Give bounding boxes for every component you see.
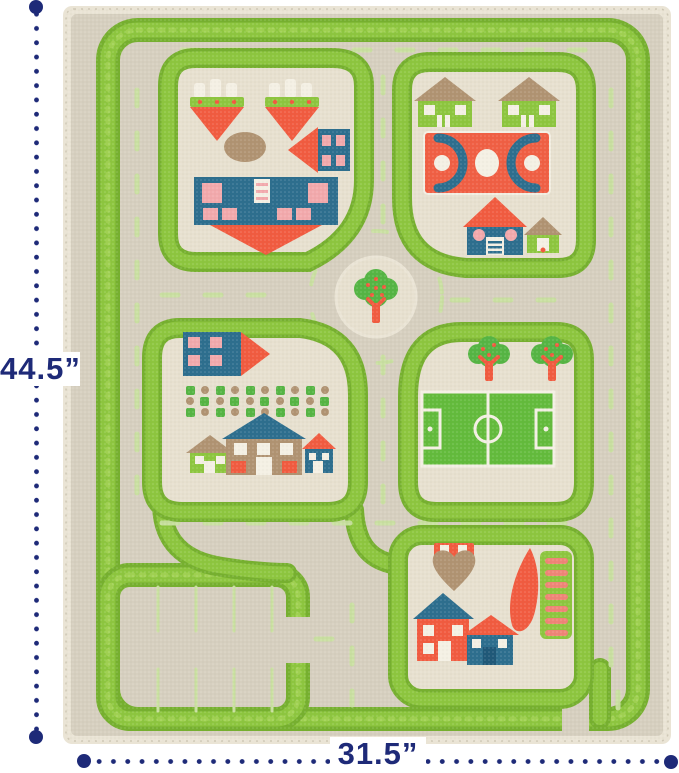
carpet-texture-overlay <box>66 9 668 741</box>
dimension-endpoint-dot <box>29 730 43 744</box>
play-rug-illustration <box>62 5 672 745</box>
height-label: 44.5” <box>0 352 80 386</box>
dimension-endpoint-dot <box>29 0 43 14</box>
width-label: 31.5” <box>330 737 426 771</box>
dimension-endpoint-dot <box>664 755 678 769</box>
product-image: 44.5” 31.5” <box>0 0 679 773</box>
dimension-endpoint-dot <box>77 754 91 768</box>
